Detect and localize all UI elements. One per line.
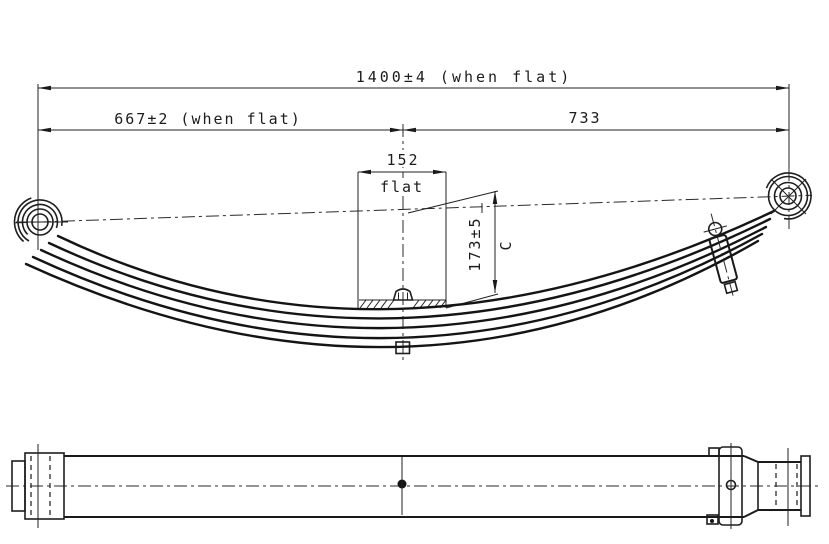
plan-clip-bolt-top bbox=[709, 448, 719, 456]
eye-center-line bbox=[14, 195, 812, 223]
left-eye bbox=[14, 198, 68, 242]
side-elevation-view: 1400±4 (when flat) 667±2 (when flat) 733… bbox=[14, 68, 812, 362]
drawing-sheet: 1400±4 (when flat) 667±2 (when flat) 733… bbox=[0, 0, 829, 544]
dim-overall-text: 1400±4 (when flat) bbox=[356, 68, 573, 86]
dim-free-camber-text: 173±5 bbox=[466, 216, 484, 271]
dim-segments: 667±2 (when flat) 733 bbox=[38, 109, 789, 132]
dim-right-segment-text: 733 bbox=[568, 109, 601, 127]
dim-seat-length-text: 152 bbox=[386, 151, 419, 169]
camber-label-text: C bbox=[497, 239, 515, 250]
dim-left-segment-text: 667±2 (when flat) bbox=[114, 110, 302, 128]
plan-right-eye-wrap bbox=[758, 448, 810, 526]
center-seat: 152 flat bbox=[358, 150, 446, 354]
leaf-stack bbox=[26, 211, 774, 347]
top-plan-view bbox=[6, 443, 822, 529]
dim-overall-length: 1400±4 (when flat) bbox=[38, 68, 789, 90]
seat-note-text: flat bbox=[380, 178, 424, 196]
plan-center-bolt bbox=[398, 457, 407, 515]
leaf-spring-drawing: 1400±4 (when flat) 667±2 (when flat) 733… bbox=[0, 0, 829, 544]
